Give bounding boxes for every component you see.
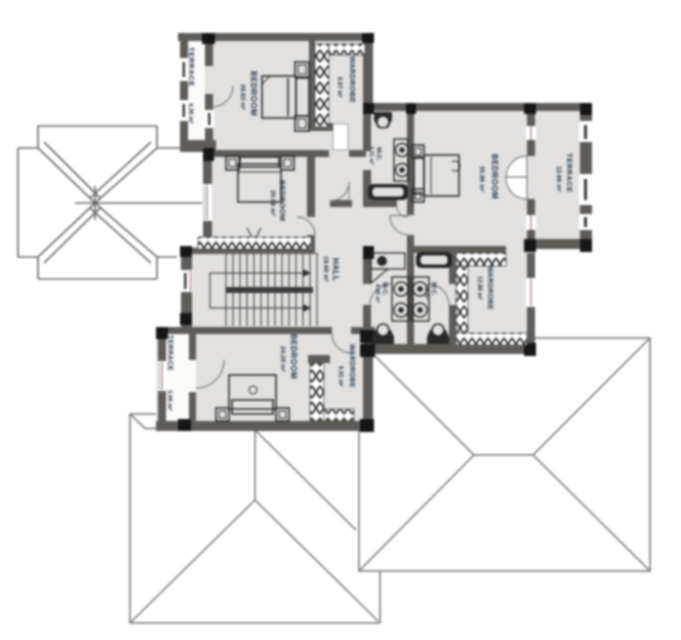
svg-text:19.98 m²: 19.98 m²	[322, 256, 329, 283]
svg-text:12.86 m²: 12.86 m²	[476, 276, 483, 300]
svg-text:20.08 m²: 20.08 m²	[269, 190, 276, 217]
svg-text:W.C.: W.C.	[375, 147, 382, 161]
svg-text:BEDROOM: BEDROOM	[249, 71, 258, 116]
svg-text:28.83 m²: 28.83 m²	[239, 84, 246, 111]
svg-text:TERRACE: TERRACE	[565, 153, 574, 193]
svg-text:W.C.: W.C.	[381, 282, 388, 296]
svg-text:BEDROOM: BEDROOM	[278, 180, 287, 221]
svg-text:WARDROBE: WARDROBE	[348, 56, 357, 103]
svg-text:WARDROBE: WARDROBE	[348, 344, 355, 388]
svg-text:6.91 m²: 6.91 m²	[337, 366, 344, 387]
svg-text:3.96 m²: 3.96 m²	[166, 390, 173, 411]
svg-text:BEDROOM: BEDROOM	[490, 154, 499, 199]
svg-text:4.95 m²: 4.95 m²	[374, 284, 381, 303]
svg-text:4.36 m²: 4.36 m²	[187, 103, 194, 124]
svg-text:TERRACE: TERRACE	[166, 335, 173, 371]
svg-text:3.31 m²: 3.31 m²	[368, 146, 375, 165]
svg-text:24.28 m²: 24.28 m²	[279, 346, 286, 373]
svg-text:BEDROOM: BEDROOM	[289, 334, 298, 379]
svg-text:HALL: HALL	[331, 258, 340, 281]
svg-text:8.87 m²: 8.87 m²	[336, 77, 343, 98]
svg-text:12.66 m²: 12.66 m²	[555, 166, 562, 193]
svg-text:35.96 m²: 35.96 m²	[478, 166, 485, 193]
svg-text:WARDROBE: WARDROBE	[486, 266, 493, 310]
svg-text:7.8 m²: 7.8 m²	[423, 284, 430, 300]
svg-text:W.C.: W.C.	[430, 282, 437, 296]
svg-text:TERRACE: TERRACE	[187, 47, 196, 87]
